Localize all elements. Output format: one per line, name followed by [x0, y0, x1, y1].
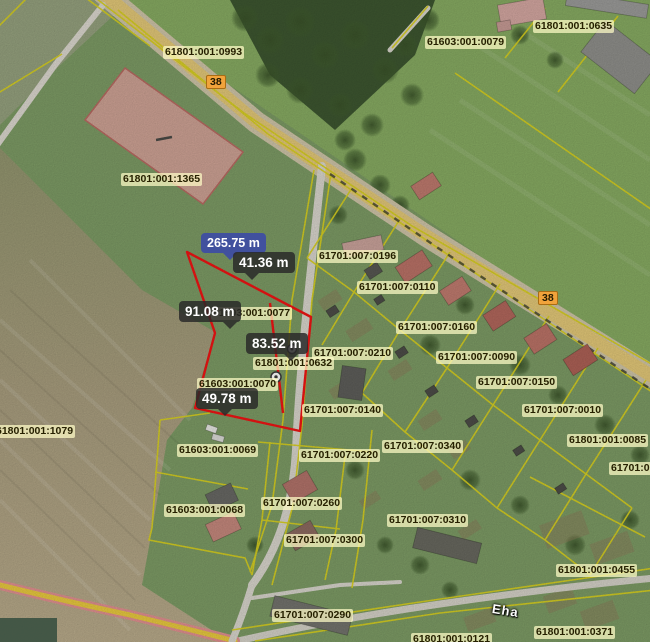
parcel-label: 61603:001:0068	[164, 504, 245, 517]
measurement-segment-badge: 83.52 m	[246, 333, 308, 354]
parcel-label: 61701:0	[609, 462, 650, 475]
parcel-label: 61701:007:0010	[522, 404, 603, 417]
parcel-label: 61701:007:0160	[396, 321, 477, 334]
measurement-segment-badge: 49.78 m	[196, 388, 258, 409]
parcel-label: 61603:001:0079	[425, 36, 506, 49]
parcel-label: 61801:001:1079	[0, 425, 75, 438]
measurement-segment-badge: 91.08 m	[179, 301, 241, 322]
measurement-segment-value: 83.52 m	[252, 336, 302, 351]
parcel-label: 61801:001:0371	[534, 626, 615, 639]
parcel-label: 61801:001:1365	[121, 173, 202, 186]
road-number-sign: 38	[206, 75, 226, 89]
road-number-sign: 38	[538, 291, 558, 305]
callout-pointer	[284, 354, 298, 361]
measurement-segment-value: 41.36 m	[239, 255, 289, 270]
parcel-label: 61801:001:0993	[163, 46, 244, 59]
callout-pointer	[245, 273, 259, 280]
parcel-label: 61701:007:0300	[284, 534, 365, 547]
parcel-label: 61701:007:0310	[387, 514, 468, 527]
parcel-label: 61701:007:0090	[436, 351, 517, 364]
measurement-total-badge: 265.75 m	[201, 233, 266, 253]
measurement-segment-badge: 41.36 m	[233, 252, 295, 273]
parcel-label: 61701:007:0196	[317, 250, 398, 263]
map-viewport[interactable]: 61801:001:0993 61603:001:0079 61801:001:…	[0, 0, 650, 642]
measurement-segment-value: 91.08 m	[185, 304, 235, 319]
parcel-label: 61701:007:0340	[382, 440, 463, 453]
coordinate-overlay: .22 35	[0, 618, 57, 642]
parcel-label: 61801:001:0635	[533, 20, 614, 33]
measurement-segment-value: 49.78 m	[202, 391, 252, 406]
parcel-label: 61801:001:0085	[567, 434, 648, 447]
parcel-label: 61701:007:0260	[261, 497, 342, 510]
parcel-label: 61701:007:0140	[302, 404, 383, 417]
parcel-label: 61801:001:0455	[556, 564, 637, 577]
parcel-label: 61801:001:0121	[411, 633, 492, 642]
callout-pointer	[218, 409, 232, 416]
parcel-label: 61603:001:0069	[177, 444, 258, 457]
callout-pointer	[223, 322, 237, 329]
parcel-label: 61701:007:0220	[299, 449, 380, 462]
measurement-total-value: 265.75 m	[207, 236, 260, 250]
parcel-label: 61701:007:0290	[272, 609, 353, 622]
parcel-label: 61701:007:0110	[357, 281, 438, 294]
parcel-label: 61701:007:0150	[476, 376, 557, 389]
